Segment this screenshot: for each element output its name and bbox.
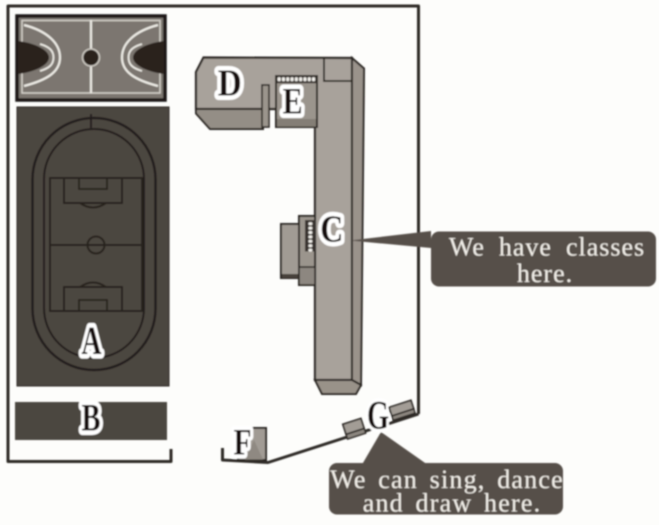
svg-text:C: C — [320, 209, 343, 251]
svg-text:G: G — [367, 393, 389, 438]
svg-text:and draw here.: and draw here. — [363, 489, 542, 518]
svg-text:F: F — [234, 422, 252, 463]
svg-text:E: E — [283, 82, 303, 123]
svg-text:D: D — [218, 63, 242, 105]
svg-text:A: A — [82, 318, 102, 363]
svg-text:B: B — [82, 397, 101, 440]
svg-text:We have classes: We have classes — [449, 233, 645, 262]
svg-text:here.: here. — [517, 259, 573, 288]
